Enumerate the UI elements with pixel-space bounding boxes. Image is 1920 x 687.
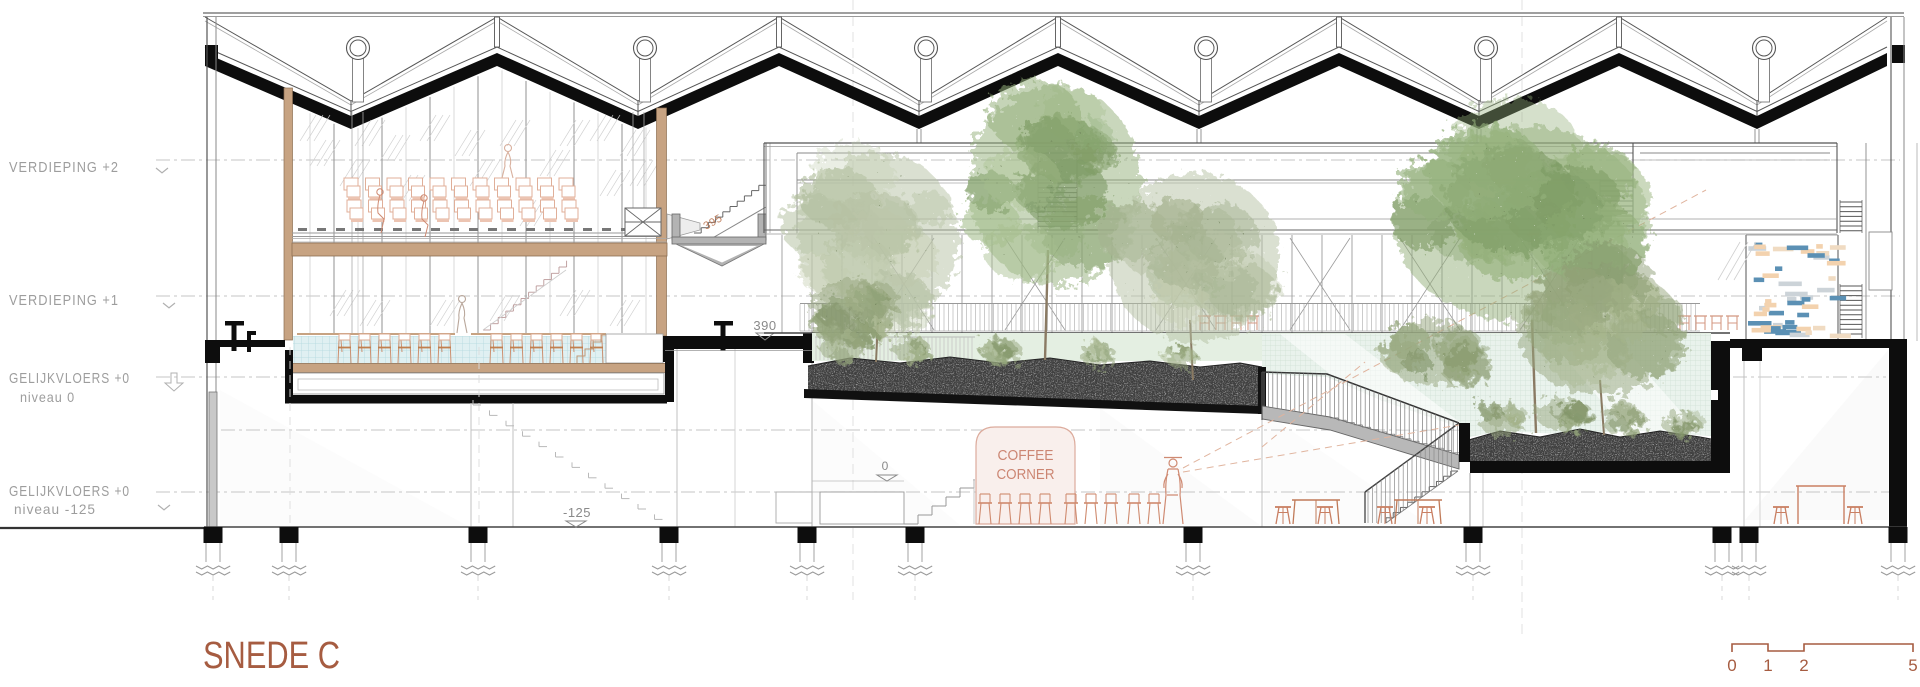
svg-text:COFFEE: COFFEE (998, 447, 1054, 464)
svg-text:5: 5 (1908, 656, 1917, 675)
svg-text:CORNER: CORNER (997, 466, 1055, 483)
svg-text:VERDIEPING +2: VERDIEPING +2 (9, 159, 119, 176)
svg-text:1: 1 (1763, 656, 1772, 675)
svg-text:SNEDE C: SNEDE C (203, 635, 340, 677)
svg-text:2: 2 (1799, 656, 1808, 675)
svg-text:niveau 0: niveau 0 (20, 389, 75, 405)
svg-text:niveau -125: niveau -125 (14, 501, 96, 517)
svg-text:GELIJKVLOERS +0: GELIJKVLOERS +0 (9, 370, 130, 387)
svg-text:-125: -125 (563, 505, 591, 520)
svg-text:0: 0 (882, 459, 889, 473)
svg-text:0: 0 (1727, 656, 1736, 675)
svg-text:VERDIEPING +1: VERDIEPING +1 (9, 292, 119, 309)
svg-text:GELIJKVLOERS +0: GELIJKVLOERS +0 (9, 483, 130, 500)
svg-text:390: 390 (753, 318, 776, 333)
